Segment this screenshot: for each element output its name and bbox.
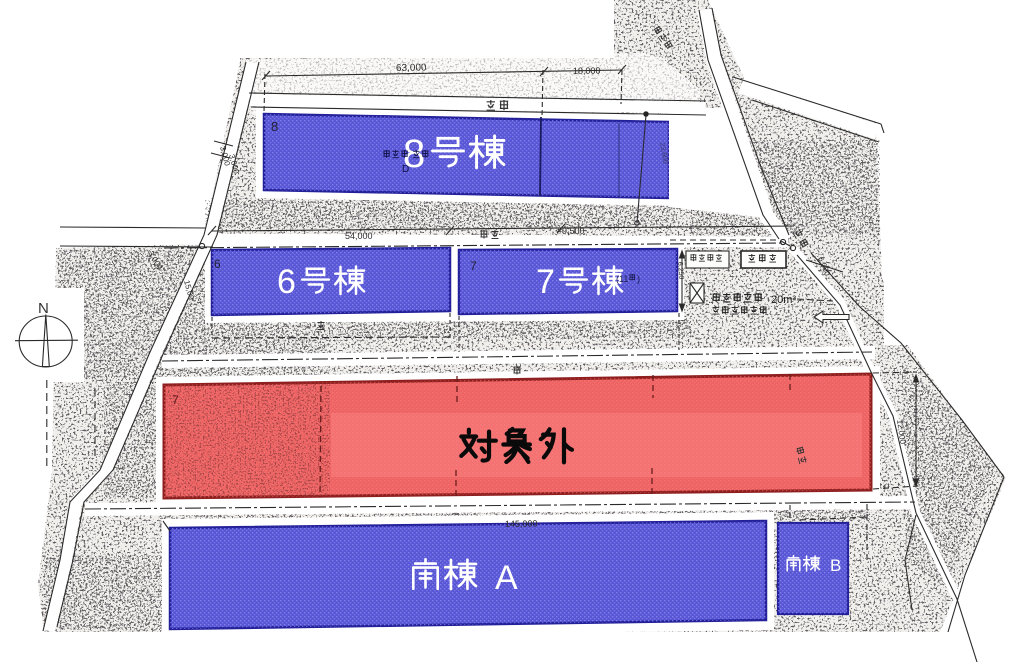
svg-text:7: 7 [470, 259, 477, 273]
svg-text:18,000: 18,000 [573, 66, 601, 76]
svg-text:B: B [830, 556, 841, 575]
svg-text:8: 8 [271, 119, 278, 134]
svg-text:D: D [402, 164, 409, 175]
svg-text:#9,500: #9,500 [557, 226, 585, 236]
svg-text:A: A [495, 559, 518, 597]
svg-text:6: 6 [214, 257, 221, 271]
svg-text:6: 6 [277, 263, 296, 301]
svg-text:54,000: 54,000 [345, 231, 373, 241]
svg-text:(11: (11 [616, 274, 628, 284]
svg-text:63,000: 63,000 [396, 62, 427, 74]
svg-text:20m³: 20m³ [771, 294, 796, 306]
svg-text:): ) [637, 274, 640, 284]
svg-text:7: 7 [172, 393, 179, 407]
svg-text:7: 7 [536, 263, 555, 301]
svg-text:145,000: 145,000 [505, 518, 538, 529]
svg-text:N: N [38, 300, 49, 317]
